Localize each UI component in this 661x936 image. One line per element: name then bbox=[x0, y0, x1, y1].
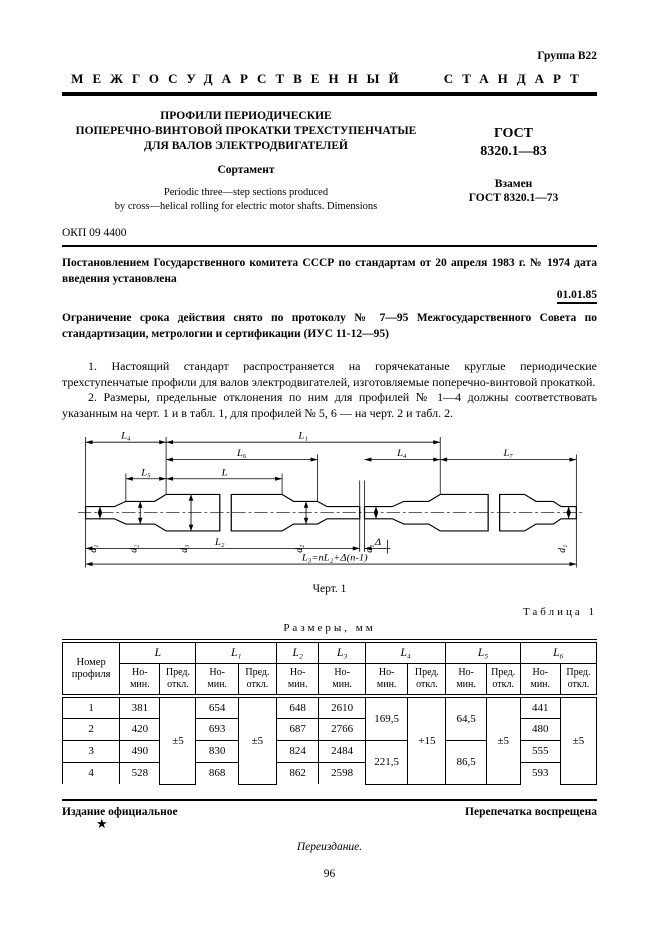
body-text: 1. Настоящий стандарт распространяется н… bbox=[62, 359, 597, 421]
dimension-labels: L₄ L₁ L₆ L₅ L L₄ L₇ L₂ Δ L₃=nL₂+Δ(n-1) d… bbox=[87, 431, 567, 563]
cell-L1-deviation: ±5 bbox=[238, 696, 276, 784]
official-edition-label: Издание официальное bbox=[62, 806, 178, 818]
cell-L2-nominal: 824 bbox=[276, 740, 318, 762]
shaft-drawing: L₄ L₁ L₆ L₅ L L₄ L₇ L₂ Δ L₃=nL₂+Δ(n-1) d… bbox=[76, 430, 584, 578]
star-icon: ★ bbox=[96, 818, 597, 832]
reprint-prohibited-label: Перепечатка воспрещена bbox=[465, 806, 597, 818]
title-right: ГОСТ 8320.1—83 Взамен ГОСТ 8320.1—73 bbox=[430, 109, 597, 213]
cell-L-nominal: 490 bbox=[120, 740, 160, 762]
cell-L6-nominal: 555 bbox=[520, 740, 560, 762]
replaces-label: Взамен bbox=[430, 177, 597, 191]
gost-designation: ГОСТ 8320.1—83 bbox=[430, 125, 597, 161]
table-group-header-row: Номер профиля L L₁ L₂ L₃ L₄ L₅ L₆ bbox=[63, 641, 597, 664]
col-group-L5: L₅ bbox=[446, 641, 520, 664]
sub-header-deviation: Пред. откл. bbox=[408, 664, 446, 697]
col-group-L1: L₁ bbox=[196, 641, 277, 664]
dim-L6-label: L₆ bbox=[236, 449, 247, 459]
footer: Издание официальное Перепечатка воспреще… bbox=[62, 799, 597, 880]
dim-d1b-label: d₁ bbox=[363, 545, 375, 553]
title-line-1: ПРОФИЛИ ПЕРИОДИЧЕСКИЕ bbox=[62, 109, 430, 124]
cell-L2-nominal: 687 bbox=[276, 718, 318, 740]
cell-profile-num: 3 bbox=[63, 740, 120, 762]
dim-L4-label: L₄ bbox=[120, 431, 131, 441]
dim-L3-formula: L₃=nL₂+Δ(n-1) bbox=[300, 553, 367, 563]
title-en: Periodic three—step sections produced by… bbox=[62, 186, 430, 213]
okp-code: ОКП 09 4400 bbox=[62, 227, 597, 239]
sub-header-nominal: Но- мин. bbox=[520, 664, 560, 697]
cell-L1-nominal: 693 bbox=[196, 718, 238, 740]
cell-profile-num: 2 bbox=[63, 718, 120, 740]
cell-L6-nominal: 480 bbox=[520, 718, 560, 740]
replaces-number: ГОСТ 8320.1—73 bbox=[430, 191, 597, 205]
subtitle: Сортамент bbox=[62, 164, 430, 176]
figure: L₄ L₁ L₆ L₅ L L₄ L₇ L₂ Δ L₃=nL₂+Δ(n-1) d… bbox=[62, 430, 597, 595]
replaces-note: Взамен ГОСТ 8320.1—73 bbox=[430, 177, 597, 205]
col-group-L2: L₂ bbox=[276, 641, 318, 664]
cell-L4-deviation: +15 bbox=[408, 696, 446, 784]
table-sub-header-row: Но- мин. Пред. откл. Но- мин. Пред. откл… bbox=[63, 664, 597, 697]
table-caption: Таблица 1 bbox=[62, 606, 597, 618]
dim-L-label: L bbox=[220, 468, 227, 478]
limitation-paragraph: Ограничение срока действия снято по прот… bbox=[62, 310, 597, 342]
col-group-L: L bbox=[120, 641, 196, 664]
cell-L1-nominal: 830 bbox=[196, 740, 238, 762]
page-number: 96 bbox=[62, 868, 597, 880]
dim-d1c-label: d₁ bbox=[556, 545, 568, 553]
sub-header-nominal: Но- мин. bbox=[319, 664, 366, 697]
standard-type-line: МЕЖГОСУДАРСТВЕННЫЙ СТАНДАРТ bbox=[62, 71, 597, 87]
cell-L3-nominal: 2766 bbox=[319, 718, 366, 740]
col-group-L6: L₆ bbox=[520, 641, 596, 664]
cell-L3-nominal: 2598 bbox=[319, 762, 366, 784]
col-group-L3: L₃ bbox=[319, 641, 366, 664]
group-label: Группа В22 bbox=[62, 50, 597, 62]
table-units-label: Размеры, мм bbox=[62, 622, 597, 634]
cell-L2-nominal: 862 bbox=[276, 762, 318, 784]
cell-L-nominal: 381 bbox=[120, 696, 160, 718]
reissue-note: Переиздание. bbox=[62, 841, 597, 853]
dim-d1-label: d₁ bbox=[87, 545, 99, 553]
cell-L4-nominal: 221,5 bbox=[365, 740, 407, 784]
title-left: ПРОФИЛИ ПЕРИОДИЧЕСКИЕ ПОПЕРЕЧНО-ВИНТОВОЙ… bbox=[62, 109, 430, 213]
title-en-line-1: Periodic three—step sections produced bbox=[62, 186, 430, 200]
dim-L2-label: L₂ bbox=[213, 537, 224, 547]
footer-divider bbox=[62, 799, 597, 801]
dim-d2-label: d₂ bbox=[128, 544, 140, 553]
cell-L6-nominal: 441 bbox=[520, 696, 560, 718]
dim-L5-label: L₅ bbox=[140, 468, 151, 478]
cell-L4-nominal: 169,5 bbox=[365, 696, 407, 740]
title-block: ПРОФИЛИ ПЕРИОДИЧЕСКИЕ ПОПЕРЕЧНО-ВИНТОВОЙ… bbox=[62, 109, 597, 213]
cell-L6-deviation: ±5 bbox=[560, 696, 596, 784]
sub-header-nominal: Но- мин. bbox=[365, 664, 407, 697]
cell-L5-nominal: 64,5 bbox=[446, 696, 486, 740]
body-paragraph-1: 1. Настоящий стандарт распространяется н… bbox=[62, 359, 597, 390]
gost-number: 8320.1—83 bbox=[430, 143, 597, 161]
sub-header-deviation: Пред. откл. bbox=[486, 664, 520, 697]
sub-header-nominal: Но- мин. bbox=[196, 664, 238, 697]
dim-L1-label: L₁ bbox=[297, 431, 308, 441]
cell-L5-deviation: ±5 bbox=[486, 696, 520, 784]
dim-d3-label: d₃ bbox=[178, 544, 190, 553]
sub-header-nominal: Но- мин. bbox=[276, 664, 318, 697]
title-ru: ПРОФИЛИ ПЕРИОДИЧЕСКИЕ ПОПЕРЕЧНО-ВИНТОВОЙ… bbox=[62, 109, 430, 154]
sub-header-nominal: Но- мин. bbox=[446, 664, 486, 697]
effective-date: 01.01.85 bbox=[62, 289, 597, 301]
cell-L-nominal: 420 bbox=[120, 718, 160, 740]
body-paragraph-2: 2. Размеры, предельные отклонения по ним… bbox=[62, 390, 597, 421]
table-row: 1 381 ±5 654 ±5 648 2610 169,5 +15 64,5 … bbox=[63, 696, 597, 718]
cell-profile-num: 4 bbox=[63, 762, 120, 784]
cell-L-deviation: ±5 bbox=[160, 696, 196, 784]
effective-date-value: 01.01.85 bbox=[557, 289, 597, 304]
sub-header-deviation: Пред. откл. bbox=[238, 664, 276, 697]
cell-L1-nominal: 654 bbox=[196, 696, 238, 718]
cell-profile-num: 1 bbox=[63, 696, 120, 718]
sub-header-deviation: Пред. откл. bbox=[160, 664, 196, 697]
cell-L6-nominal: 593 bbox=[520, 762, 560, 784]
cell-L5-nominal: 86,5 bbox=[446, 740, 486, 784]
sub-header-nominal: Но- мин. bbox=[120, 664, 160, 697]
table-1: Номер профиля L L₁ L₂ L₃ L₄ L₅ L₆ Но- ми… bbox=[62, 639, 597, 785]
title-en-line-2: by cross—helical rolling for electric mo… bbox=[62, 200, 430, 214]
divider-thin bbox=[62, 245, 597, 247]
dim-d2b-label: d₂ bbox=[293, 544, 305, 553]
title-line-3: ДЛЯ ВАЛОВ ЭЛЕКТРОДВИГАТЕЛЕЙ bbox=[62, 139, 430, 154]
figure-caption: Черт. 1 bbox=[62, 583, 597, 595]
sub-header-deviation: Пред. откл. bbox=[560, 664, 596, 697]
dim-L4r-label: L₄ bbox=[396, 449, 407, 459]
footer-row: Издание официальное Перепечатка воспреще… bbox=[62, 806, 597, 818]
gost-label: ГОСТ bbox=[430, 125, 597, 143]
decree-paragraph: Постановлением Государственного комитета… bbox=[62, 255, 597, 287]
document-page: Группа В22 МЕЖГОСУДАРСТВЕННЫЙ СТАНДАРТ П… bbox=[0, 0, 661, 936]
col-header-profile: Номер профиля bbox=[63, 641, 120, 696]
divider-thick bbox=[62, 92, 597, 96]
title-line-2: ПОПЕРЕЧНО-ВИНТОВОЙ ПРОКАТКИ ТРЕХСТУПЕНЧА… bbox=[62, 124, 430, 139]
cell-L1-nominal: 868 bbox=[196, 762, 238, 784]
cell-L3-nominal: 2610 bbox=[319, 696, 366, 718]
cell-L-nominal: 528 bbox=[120, 762, 160, 784]
cell-L2-nominal: 648 bbox=[276, 696, 318, 718]
col-group-L4: L₄ bbox=[365, 641, 446, 664]
dimension-lines bbox=[85, 442, 576, 564]
dim-L7-label: L₇ bbox=[502, 449, 513, 459]
cell-L3-nominal: 2484 bbox=[319, 740, 366, 762]
